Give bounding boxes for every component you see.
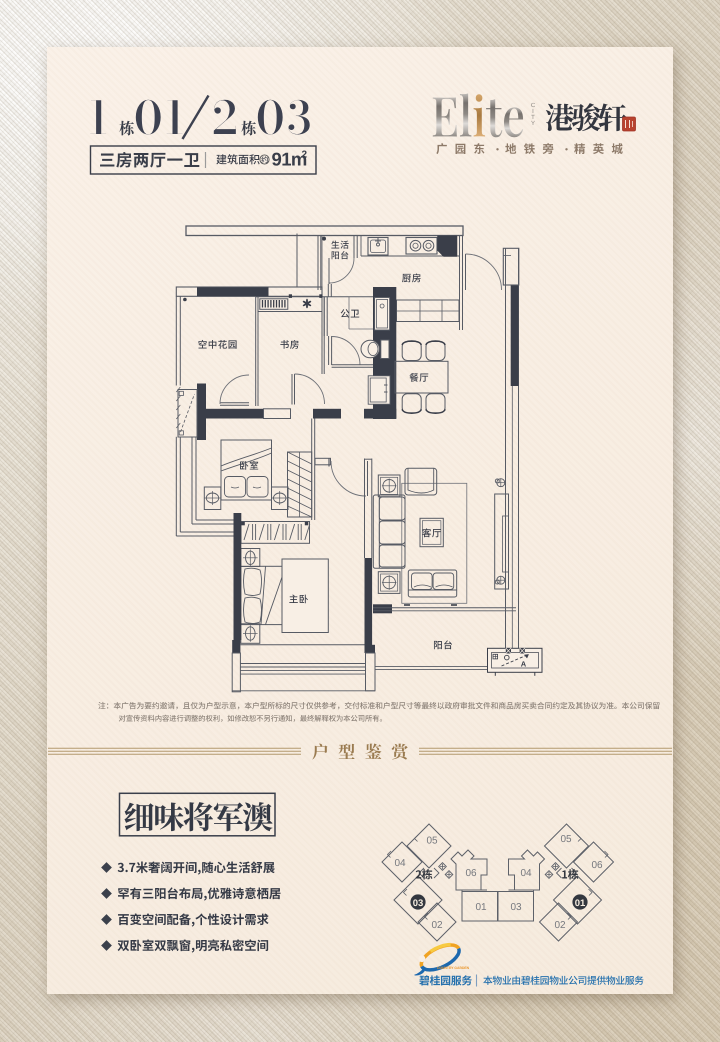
svg-text:01: 01 xyxy=(575,898,586,909)
svg-text:04: 04 xyxy=(520,868,532,879)
svg-text:02: 02 xyxy=(554,920,566,931)
svg-text:05: 05 xyxy=(426,836,438,847)
svg-text:04: 04 xyxy=(394,858,406,869)
svg-text:02: 02 xyxy=(431,920,443,931)
svg-text:03: 03 xyxy=(510,902,522,913)
svg-text:C: C xyxy=(531,102,536,109)
svg-text:COUNTRY GARDEN: COUNTRY GARDEN xyxy=(437,966,470,970)
svg-text:01: 01 xyxy=(475,902,487,913)
svg-text:2: 2 xyxy=(302,150,308,161)
svg-text:I: I xyxy=(532,108,534,115)
svg-text:06: 06 xyxy=(465,868,477,879)
svg-text:05: 05 xyxy=(560,834,572,845)
svg-text:03: 03 xyxy=(413,898,424,909)
svg-text:A: A xyxy=(521,660,527,669)
svg-text:Y: Y xyxy=(531,120,535,127)
svg-text:T: T xyxy=(531,114,535,121)
svg-text:06: 06 xyxy=(591,860,603,871)
